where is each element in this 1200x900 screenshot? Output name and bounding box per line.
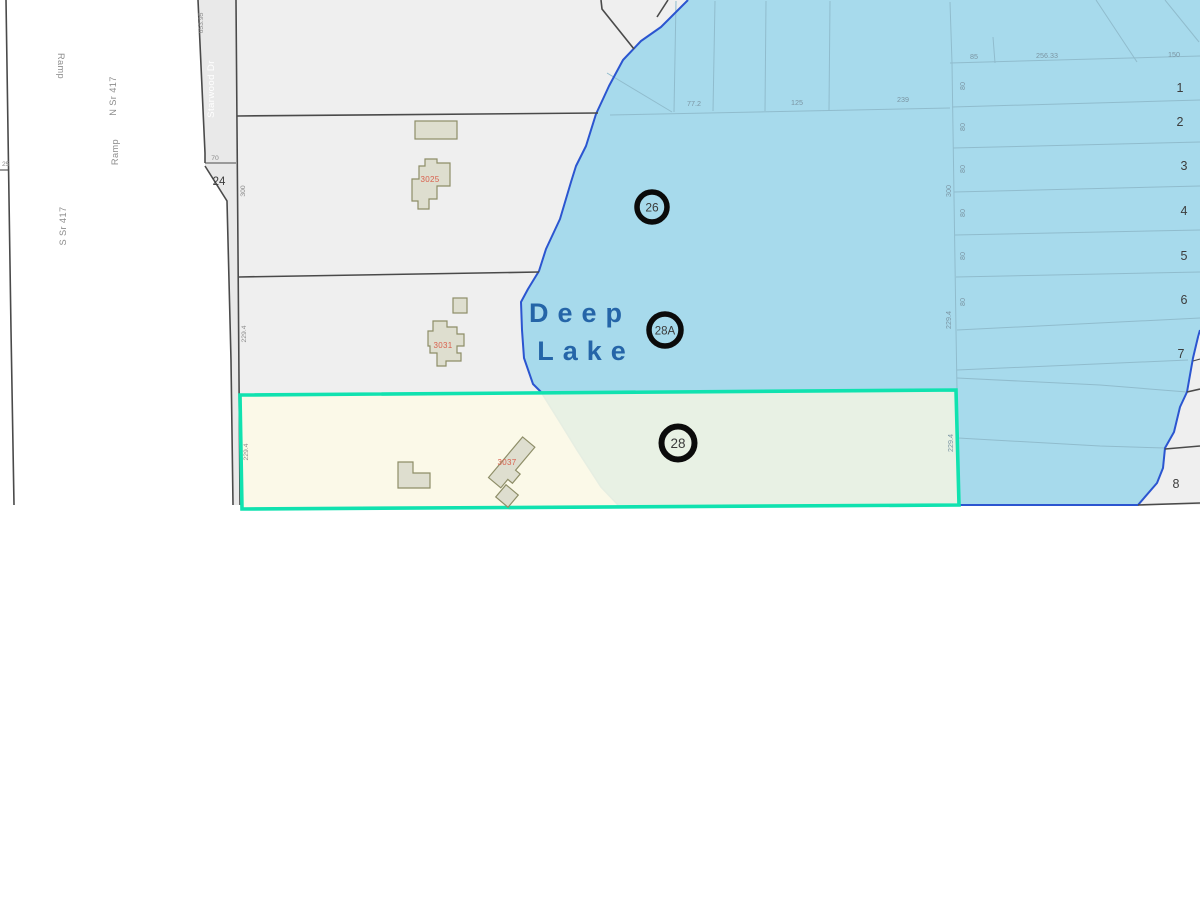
dim-lot5-width: 80 — [958, 252, 967, 260]
street-label-ramp-top: Ramp — [56, 53, 66, 79]
dim-west-229b: 229.4 — [243, 443, 250, 460]
building-rect — [415, 121, 457, 139]
dim-east-229a: 229.4 — [944, 311, 953, 329]
dim-lot6-width: 80 — [958, 298, 967, 306]
parcel-marker-28-label: 28 — [670, 436, 685, 451]
dim-top-85: 85 — [970, 52, 978, 61]
lake-name-line1: Deep — [529, 298, 631, 328]
lake-name-line2: Lake — [537, 336, 635, 366]
lot-number-6: 6 — [1181, 293, 1188, 307]
address-3031: 3031 — [434, 341, 453, 350]
dim-lake-77: 77.2 — [687, 99, 701, 108]
dim-east-300: 300 — [944, 185, 953, 197]
dim-70: 70 — [211, 155, 219, 162]
lot-number-1: 1 — [1177, 81, 1184, 95]
dim-east-229b: 229.4 — [946, 434, 955, 452]
building-shed — [453, 298, 467, 313]
lot-number-7: 7 — [1178, 347, 1185, 361]
lot-number-5: 5 — [1181, 249, 1188, 263]
dim-left-25: 25 — [2, 161, 10, 168]
address-3025: 3025 — [421, 175, 440, 184]
lot-number-2: 2 — [1177, 115, 1184, 129]
dim-lot1-width: 80 — [958, 82, 967, 90]
parcel-marker-28A-label: 28A — [655, 326, 676, 338]
lot-number-8: 8 — [1173, 477, 1180, 491]
parcel-map-viewer[interactable]: Ramp N Sr 417 Ramp S Sr 417 Starwood Dr … — [0, 0, 1200, 900]
parcel-marker-26-label: 26 — [645, 201, 659, 215]
street-label-n-sr-417: N Sr 417 — [108, 76, 118, 115]
street-label-starwood-dr: Starwood Dr — [206, 60, 217, 118]
dim-top-150: 150 — [1168, 50, 1180, 59]
label-24: 24 — [213, 176, 226, 188]
selected-parcel-28[interactable] — [240, 390, 959, 509]
address-3037: 3037 — [498, 458, 517, 467]
dim-starwood-top: 653.95 — [198, 12, 205, 33]
dim-lake-125: 125 — [791, 98, 803, 107]
lot-number-3: 3 — [1181, 159, 1188, 173]
dim-west-229a: 229.4 — [241, 325, 248, 342]
dim-lot2-width: 80 — [958, 123, 967, 131]
dim-top-256: 256.33 — [1036, 51, 1058, 60]
dim-lot4-width: 80 — [958, 209, 967, 217]
lot-number-4: 4 — [1181, 204, 1188, 218]
dim-lot3-width: 80 — [958, 165, 967, 173]
street-label-s-sr-417: S Sr 417 — [58, 207, 68, 246]
street-label-ramp-mid: Ramp — [110, 139, 120, 165]
dim-west-300: 300 — [240, 185, 247, 197]
dim-lake-239: 239 — [897, 95, 909, 104]
